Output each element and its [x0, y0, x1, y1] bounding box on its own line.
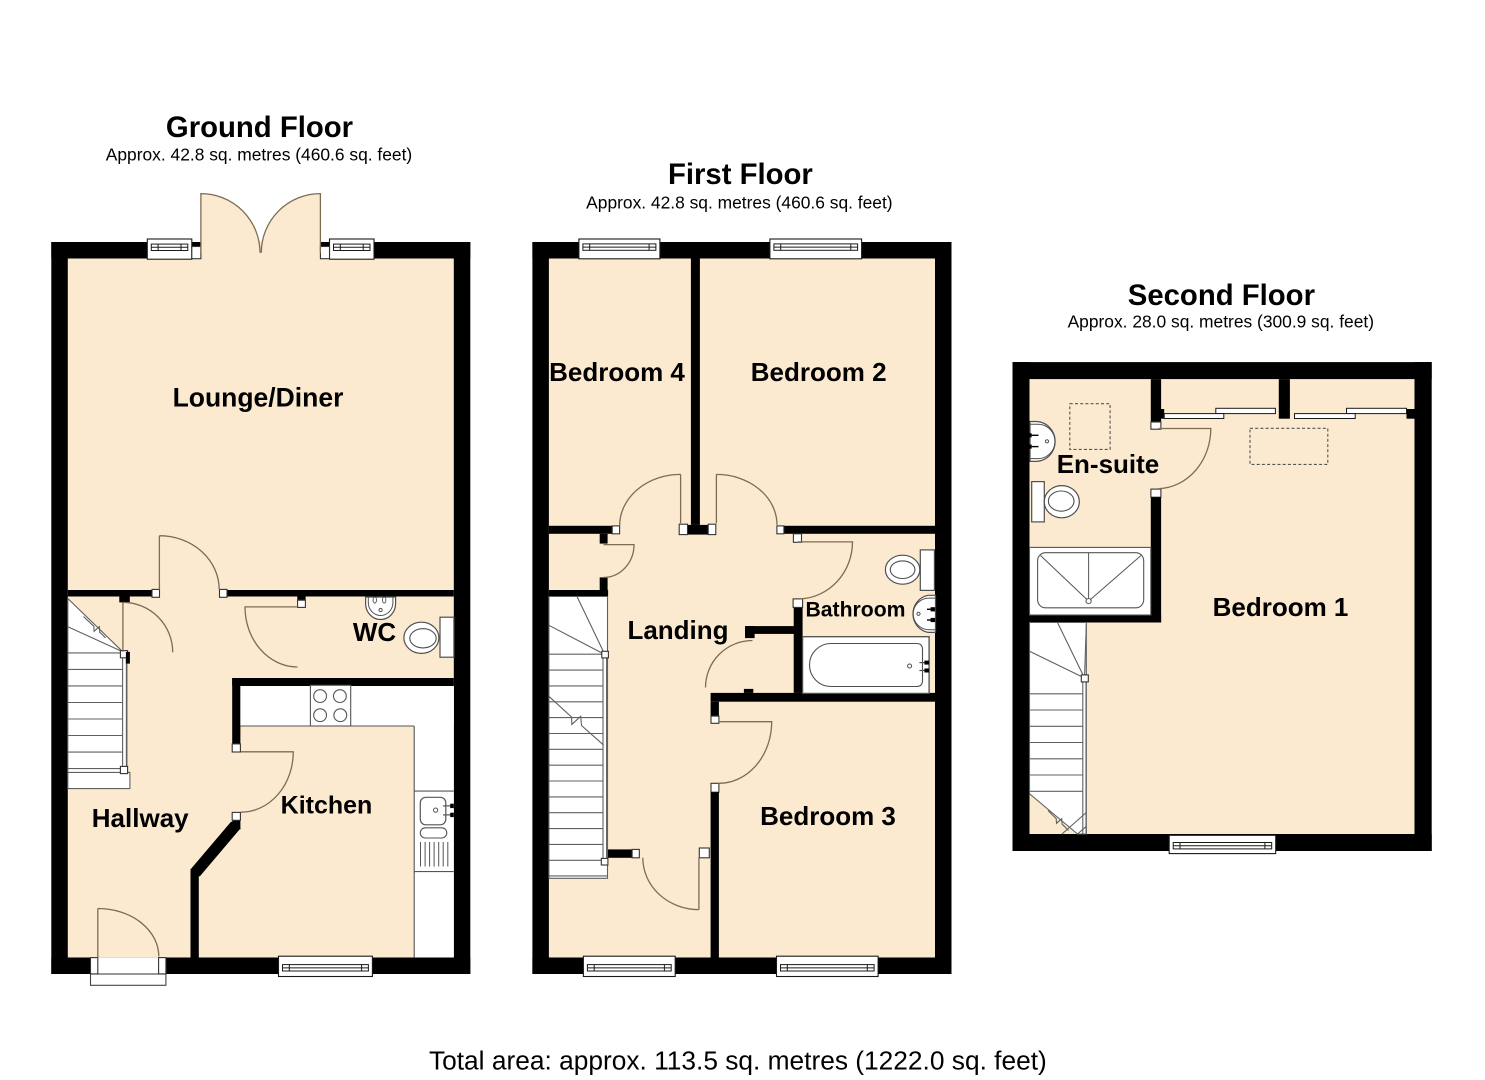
svg-text:En-suite: En-suite	[1057, 449, 1160, 479]
svg-text:Kitchen: Kitchen	[281, 792, 373, 820]
svg-text:Approx. 42.8 sq. metres (460.6: Approx. 42.8 sq. metres (460.6 sq. feet)	[586, 193, 892, 213]
svg-text:First Floor: First Floor	[668, 158, 813, 191]
svg-text:Approx. 42.8 sq. metres (460.6: Approx. 42.8 sq. metres (460.6 sq. feet)	[106, 145, 412, 165]
svg-text:Bedroom 2: Bedroom 2	[751, 357, 887, 387]
svg-text:Total area: approx. 113.5 sq.: Total area: approx. 113.5 sq. metres (12…	[429, 1046, 1047, 1076]
svg-text:Bathroom: Bathroom	[805, 598, 905, 621]
svg-text:Ground Floor: Ground Floor	[166, 111, 353, 144]
svg-text:Approx. 28.0 sq. metres (300.9: Approx. 28.0 sq. metres (300.9 sq. feet)	[1068, 312, 1374, 332]
svg-text:Hallway: Hallway	[92, 803, 189, 833]
svg-text:Bedroom 1: Bedroom 1	[1213, 592, 1349, 622]
svg-text:Bedroom 3: Bedroom 3	[760, 801, 896, 831]
svg-text:Lounge/Diner: Lounge/Diner	[173, 383, 344, 413]
svg-text:Bedroom 4: Bedroom 4	[549, 357, 685, 387]
svg-text:WC: WC	[353, 617, 397, 647]
svg-text:Landing: Landing	[627, 615, 728, 645]
svg-text:Second Floor: Second Floor	[1128, 279, 1315, 312]
